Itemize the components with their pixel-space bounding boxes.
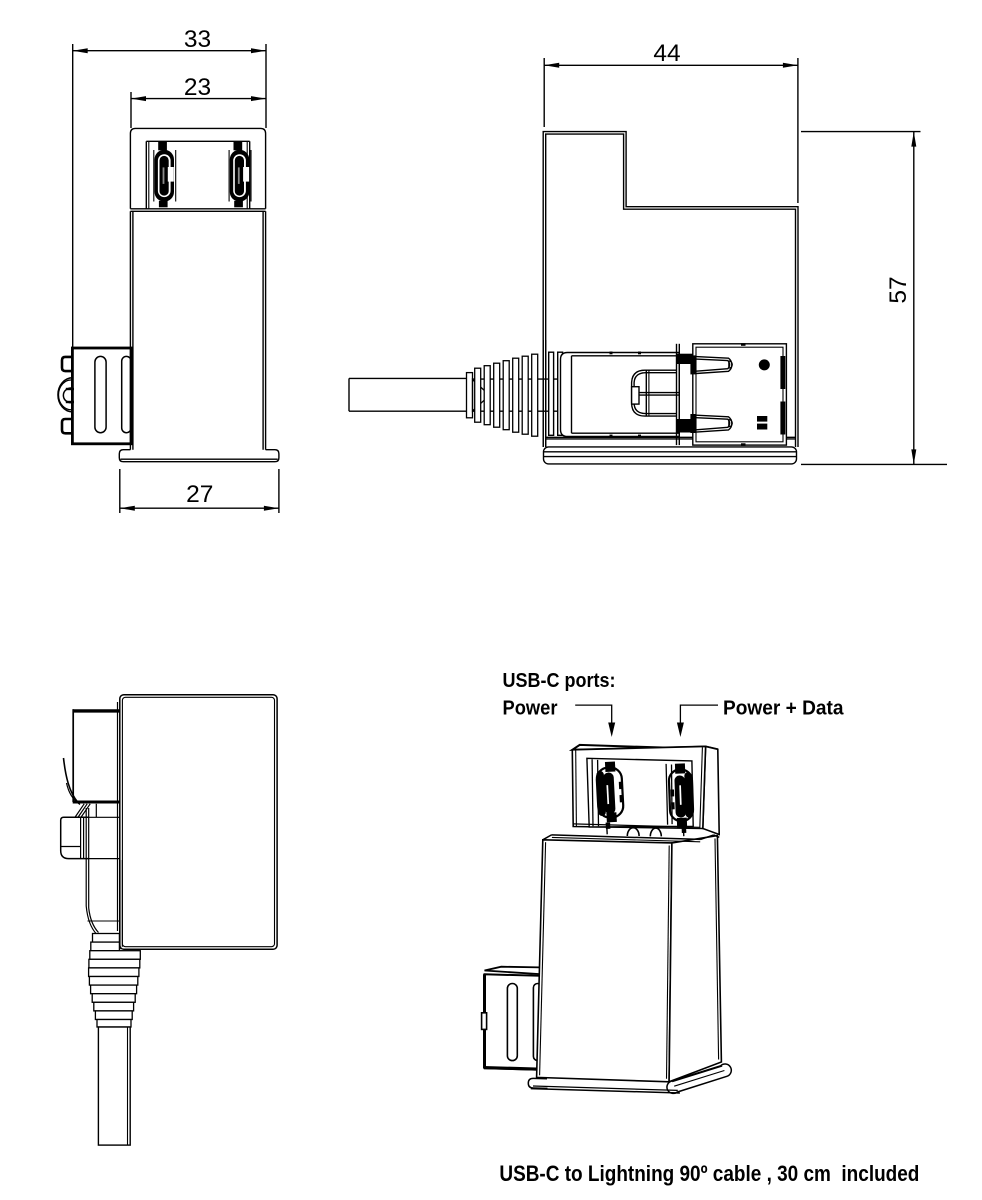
svg-text:Power + Data: Power + Data (723, 698, 844, 720)
svg-text:USB-C ports:: USB-C ports: (503, 670, 616, 692)
svg-text:23: 23 (184, 74, 211, 101)
svg-text:USB-C to Lightning 90º cable ,: USB-C to Lightning 90º cable , 30 cm inc… (499, 1161, 919, 1186)
svg-text:Power: Power (503, 698, 558, 720)
svg-text:33: 33 (184, 26, 211, 53)
svg-text:27: 27 (186, 481, 213, 508)
svg-text:57: 57 (885, 276, 912, 303)
svg-text:44: 44 (653, 40, 680, 67)
